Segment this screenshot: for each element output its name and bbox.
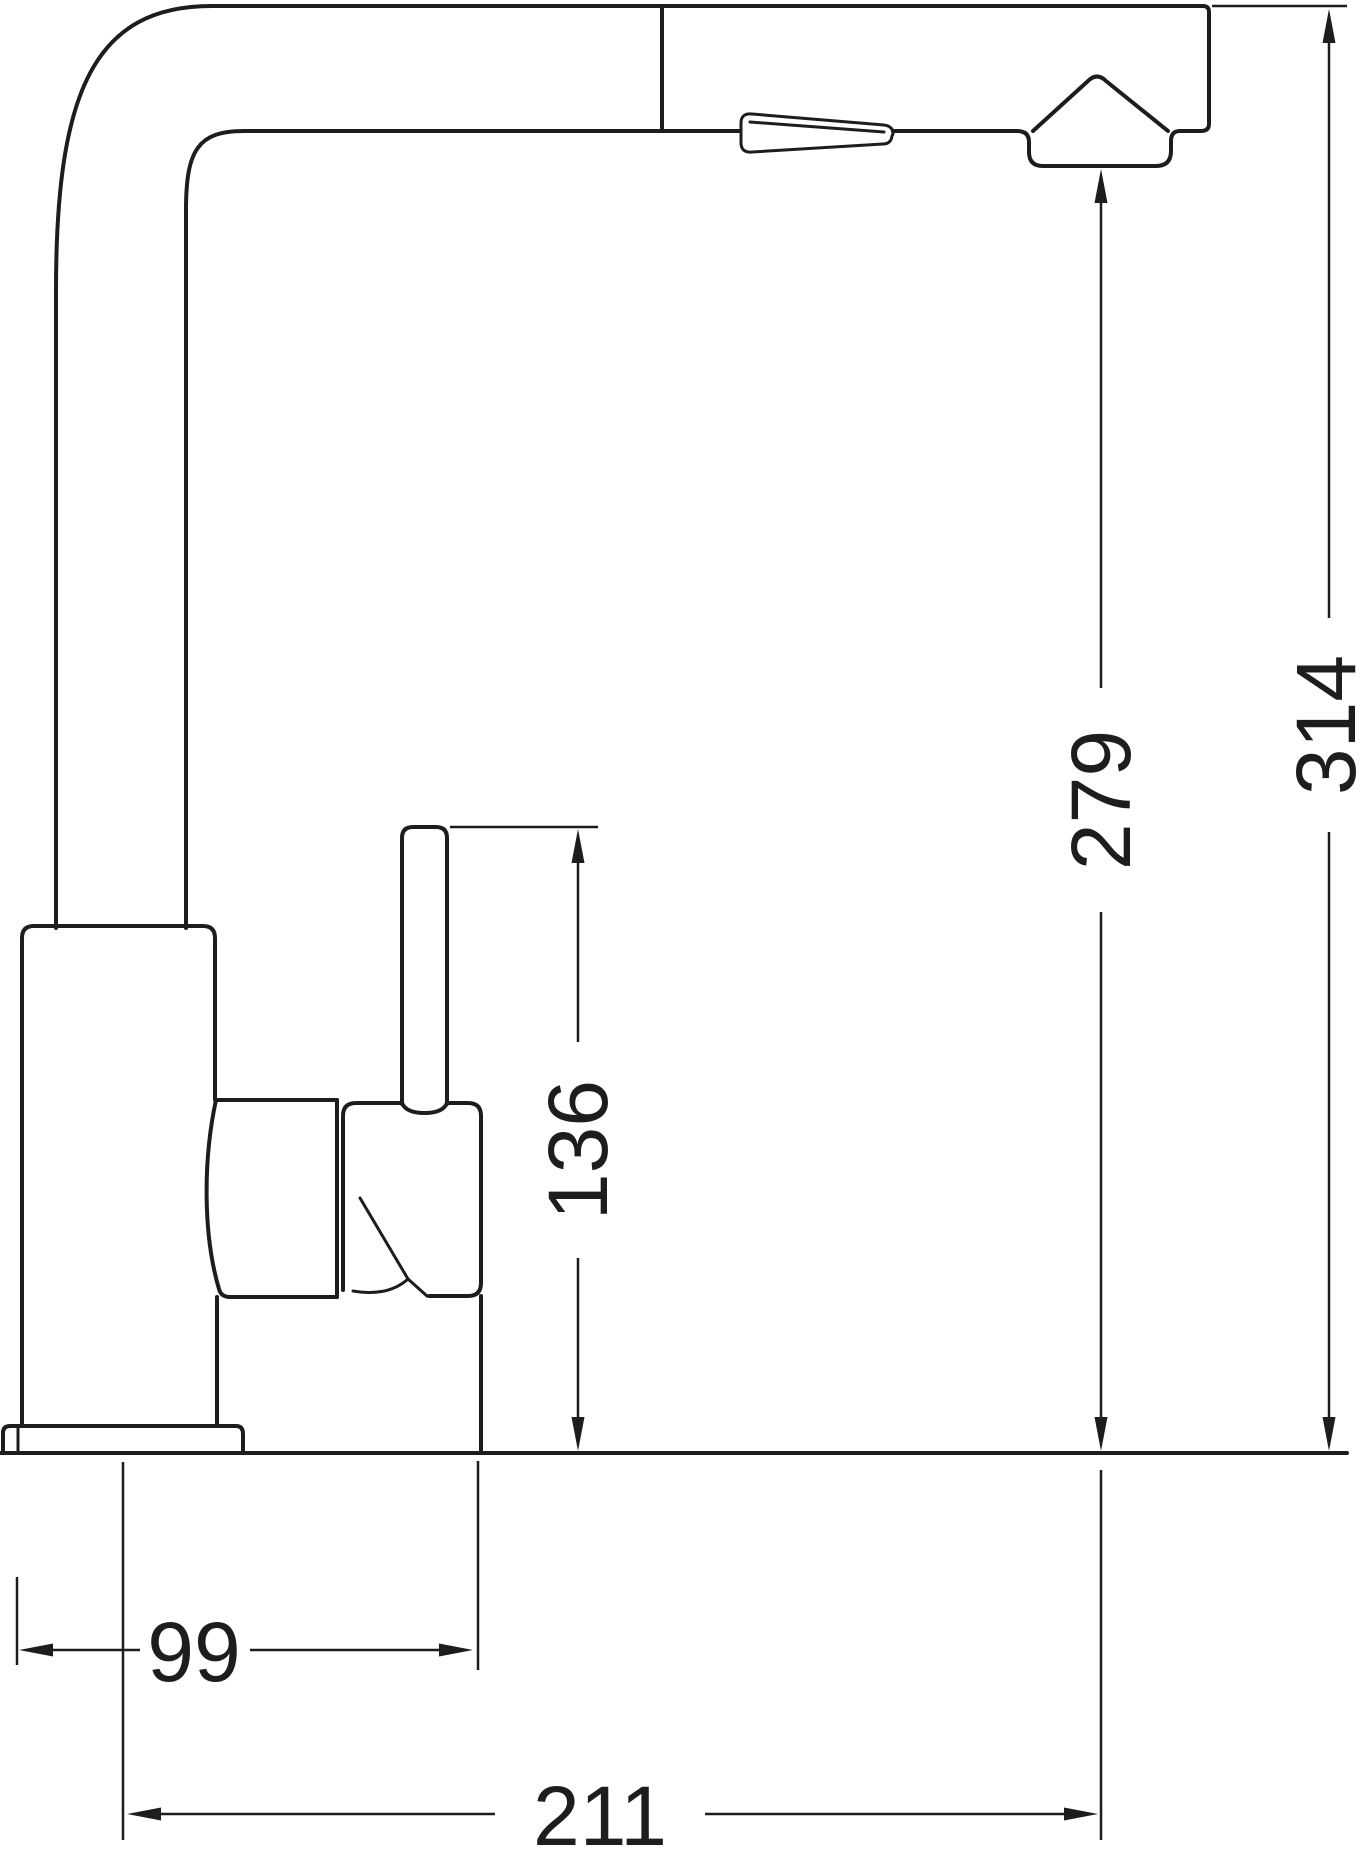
dim-99-arrow-right-icon — [439, 1644, 473, 1657]
dim-base-offset: 99 — [17, 1461, 478, 1699]
dim-136-arrow-up-icon — [572, 829, 585, 863]
dim-136-label: 136 — [531, 1080, 625, 1220]
dim-211-arrow-left-icon — [127, 1808, 161, 1821]
spray-head-cone — [1033, 77, 1168, 132]
base-plate — [3, 1426, 243, 1452]
handle-rod — [402, 827, 447, 1104]
faucet-technical-drawing: 136 279 314 99 211 — [0, 0, 1366, 1852]
dim-outlet-height: 279 — [1054, 169, 1148, 1451]
release-clip-outer — [741, 114, 893, 152]
handle-hub-outline — [343, 1103, 481, 1296]
handle-hub-pivot-arc — [353, 1279, 408, 1293]
collar-waist-curve — [207, 1100, 337, 1297]
dim-99-label: 99 — [147, 1605, 240, 1699]
base-plate-outline — [3, 1426, 243, 1452]
dim-279-arrow-down-icon — [1095, 1417, 1108, 1451]
drawing-canvas: 136 279 314 99 211 — [0, 0, 1366, 1852]
body-column — [22, 926, 481, 1452]
dim-handle-height: 136 — [450, 827, 625, 1451]
dim-314-label: 314 — [1279, 655, 1366, 795]
spout-tube-inner — [186, 131, 739, 928]
dim-279-label: 279 — [1054, 730, 1148, 870]
dim-99-arrow-left-icon — [19, 1644, 53, 1657]
dim-211-label: 211 — [533, 1769, 667, 1852]
dim-314-arrow-up-icon — [1323, 9, 1336, 43]
handle-hub-pivot-diagonal — [360, 1198, 427, 1296]
spout-tube-outer — [56, 6, 1209, 928]
dim-211-arrow-right-icon — [1064, 1808, 1098, 1821]
dim-136-arrow-down-icon — [572, 1417, 585, 1451]
release-clip — [741, 114, 893, 152]
collar — [207, 1100, 337, 1297]
handle-hub — [337, 1100, 481, 1297]
dim-spout-reach: 211 — [123, 1462, 1101, 1852]
dim-314-arrow-down-icon — [1323, 1417, 1336, 1451]
dim-279-arrow-up-icon — [1095, 169, 1108, 203]
dim-total-height: 314 — [1212, 6, 1366, 1451]
faucet-outline — [0, 6, 1347, 1453]
body-column-outline — [22, 926, 215, 1426]
